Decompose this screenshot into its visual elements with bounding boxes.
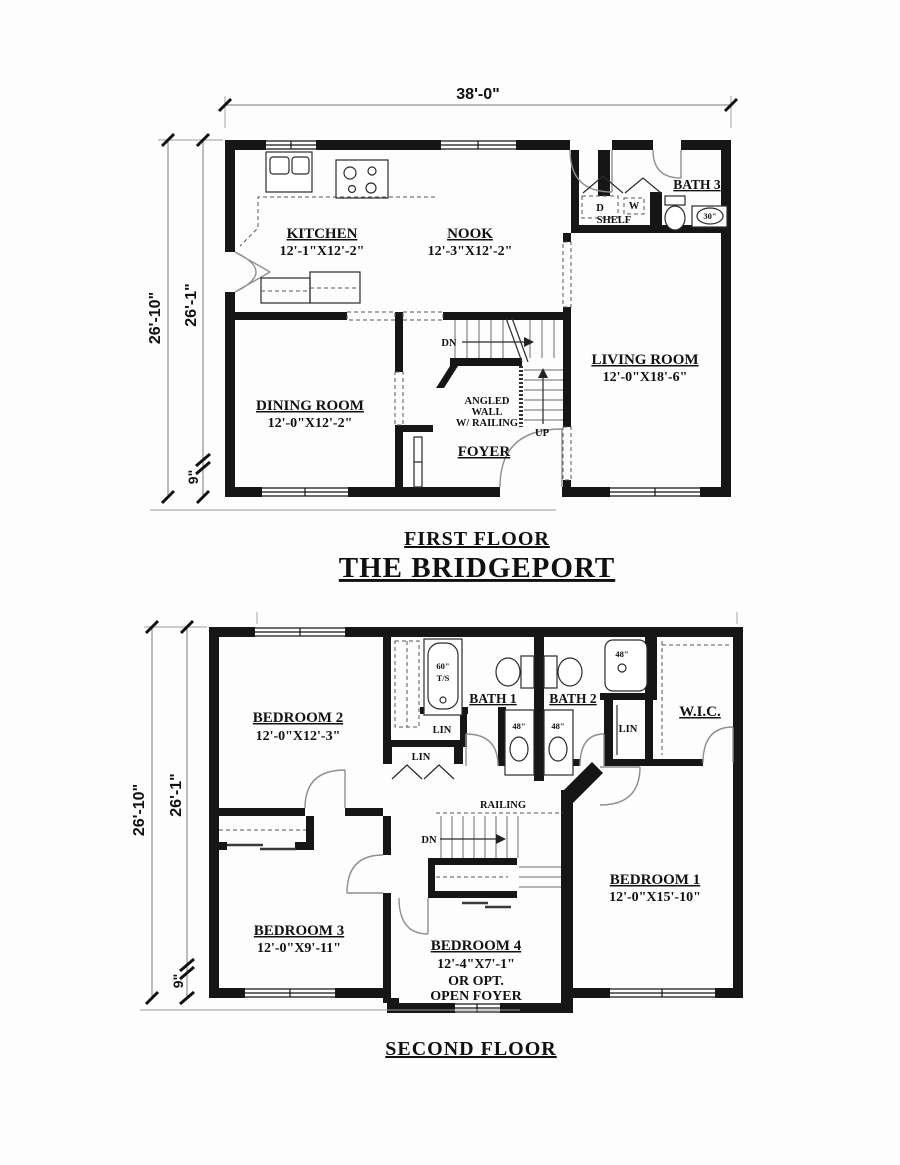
bath1-label: BATH 1 <box>469 691 517 706</box>
plan-name-title: THE BRIDGEPORT <box>339 552 615 584</box>
down-arrow <box>462 337 534 347</box>
vanity-size-label: 48" <box>551 721 564 731</box>
bedroom2-label: BEDROOM 2 <box>253 710 343 726</box>
sink-basin-right <box>292 157 309 174</box>
f1-dn-label: DN <box>441 338 457 349</box>
angled-wall-line1: ANGLED <box>465 396 510 407</box>
foyer-closet-door <box>414 437 422 487</box>
bedroom2-window <box>255 628 345 636</box>
tub-type-label: T/S <box>437 673 450 683</box>
bath1-door <box>466 734 498 766</box>
railing-label: RAILING <box>480 800 526 811</box>
bedroom2-door <box>305 770 345 808</box>
bedroom4-alt1: OR OPT. <box>448 974 504 989</box>
angled-wall-line2: WALL <box>472 407 503 418</box>
f1-stair-down-treads <box>455 320 554 358</box>
shelf-label: SHELF <box>597 215 631 226</box>
first-floor-plan: 38'-0" 26'-10" 26'-1" 9" KITCHEN 12'-1"X… <box>147 86 737 510</box>
burner-icon <box>349 186 356 193</box>
bedroom1-size: 12'-0"X15'-10" <box>609 890 701 905</box>
linen-label: LIN <box>619 724 638 735</box>
wic-shelves <box>662 641 730 755</box>
linen-label: LIN <box>412 752 431 763</box>
shower-size-label: 48" <box>615 649 628 659</box>
nook-window <box>441 141 516 149</box>
cased-opening <box>563 242 571 307</box>
bath1-sink <box>510 737 528 761</box>
sink-basin-left <box>270 157 289 174</box>
second-floor-title: SECOND FLOOR <box>385 1038 556 1060</box>
angled-wall-line3: W/ RAILING <box>456 418 518 429</box>
bath3-door <box>653 150 681 178</box>
nook-label: NOOK <box>447 226 493 242</box>
linen-label: LIN <box>433 725 452 736</box>
f2-dn-label: DN <box>421 835 437 846</box>
toilet-bowl <box>665 206 685 230</box>
burner-icon <box>368 167 376 175</box>
bedroom4-door <box>399 898 428 934</box>
f1-up-label: UP <box>535 428 550 439</box>
f2-offset-dim: 9" <box>170 974 186 988</box>
dining-room-size: 12'-0"X12'-2" <box>268 416 353 431</box>
bedroom1-door <box>600 767 640 805</box>
bedroom3-label: BEDROOM 3 <box>254 923 344 939</box>
f2-main-depth-dim: 26'-1" <box>168 773 185 816</box>
kitchen-label: KITCHEN <box>287 226 358 242</box>
f1-width-dim: 38'-0" <box>456 86 499 103</box>
second-floor-plan: 26'-10" 26'-1" 9" BEDROOM 2 12'-0"X12'-3… <box>131 612 743 1013</box>
kitchen-window <box>266 141 316 149</box>
bedroom1-window <box>610 989 715 997</box>
first-floor-title: FIRST FLOOR <box>404 528 550 550</box>
bath2-door <box>580 734 604 766</box>
toilet-tank <box>665 196 685 205</box>
kitchen-range <box>336 160 388 198</box>
bedroom4-size: 12'-4"X7'-1" <box>437 957 515 972</box>
bedroom4-label: BEDROOM 4 <box>431 938 522 954</box>
bedroom3-size: 12'-0"X9'-11" <box>257 941 341 956</box>
f1-overall-depth-dim: 26'-10" <box>147 292 164 344</box>
bedroom3-closet-doors <box>227 845 296 849</box>
linen2-bifold-doors <box>392 765 454 779</box>
toilet-bowl <box>558 658 582 686</box>
tub-drain <box>440 697 446 703</box>
wic-door <box>703 727 733 763</box>
shower-48 <box>605 640 647 691</box>
f2-down-arrow <box>440 834 506 844</box>
living-room-size: 12'-0"X18'-6" <box>603 370 688 385</box>
bath2-sink <box>549 737 567 761</box>
toilet-bowl <box>496 658 520 686</box>
living-room-label: LIVING ROOM <box>591 352 698 368</box>
kitchen-size: 12'-1"X12'-2" <box>280 244 365 259</box>
nook-size: 12'-3"X12'-2" <box>428 244 513 259</box>
floor-plan-page: 38'-0" 26'-10" 26'-1" 9" KITCHEN 12'-1"X… <box>0 0 900 1165</box>
foyer-label: FOYER <box>458 444 511 460</box>
toilet-tank <box>521 656 534 688</box>
bedroom3-window <box>245 989 335 997</box>
bath2-label: BATH 2 <box>549 691 597 706</box>
burner-icon <box>344 167 356 179</box>
vanity-size-label: 48" <box>512 721 525 731</box>
toilet-tank <box>544 656 557 688</box>
f2-overall-depth-dim: 26'-10" <box>131 784 148 836</box>
up-arrow <box>538 368 548 424</box>
bedroom2-size: 12'-0"X12'-3" <box>256 729 341 744</box>
cased-opening <box>563 427 571 480</box>
bedroom1-label: BEDROOM 1 <box>610 872 700 888</box>
f2-stair-treads <box>441 816 518 858</box>
understair-closet-doors <box>462 903 511 907</box>
f1-offset-dim: 9" <box>185 470 201 484</box>
cased-opening <box>403 312 443 320</box>
dining-window <box>262 488 348 496</box>
cased-opening <box>395 372 403 425</box>
f2-stair-lower-treads <box>519 867 561 887</box>
floor-plan-drawing: 38'-0" 26'-10" 26'-1" 9" KITCHEN 12'-1"X… <box>0 0 900 1165</box>
washer-label: W <box>629 201 640 212</box>
burner-icon <box>366 183 376 193</box>
shower-drain <box>618 664 626 672</box>
wic-label: W.I.C. <box>679 704 721 720</box>
bedroom4-alt2: OPEN FOYER <box>430 989 522 1004</box>
bath3-label: BATH 3 <box>673 177 721 192</box>
tub-size-label: 60" <box>436 661 449 671</box>
kitchen-side-door <box>235 252 270 292</box>
vanity-30-label: 30" <box>703 211 716 221</box>
living-window <box>610 488 700 496</box>
cased-opening <box>347 312 395 320</box>
dining-room-label: DINING ROOM <box>256 398 364 414</box>
dryer-label: D <box>596 203 604 214</box>
f1-main-depth-dim: 26'-1" <box>183 283 200 326</box>
bedroom4-window <box>455 1004 500 1012</box>
bedroom3-door <box>347 855 383 893</box>
